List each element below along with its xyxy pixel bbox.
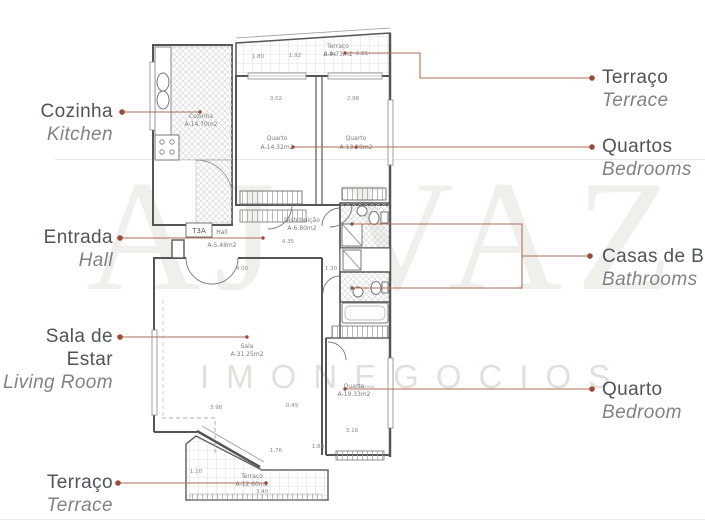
label-cozinha-en: Kitchen bbox=[0, 123, 113, 146]
svg-text:1.30: 1.30 bbox=[325, 266, 338, 272]
label-terraco-tr: Terraço Terrace bbox=[602, 66, 669, 112]
label-entrada-en: Hall bbox=[0, 249, 113, 272]
kitchen-fixtures bbox=[150, 47, 232, 223]
svg-text:A-14.70m2: A-14.70m2 bbox=[185, 121, 218, 128]
svg-text:1.10: 1.10 bbox=[190, 469, 203, 475]
utility-box bbox=[172, 240, 184, 258]
kitchen-stove bbox=[155, 135, 179, 160]
bedroom3-bottom-window bbox=[336, 451, 384, 460]
svg-text:A-6.80m2: A-6.80m2 bbox=[287, 225, 316, 232]
label-sala-pt: Sala de Estar bbox=[0, 325, 113, 371]
svg-text:3.40: 3.40 bbox=[256, 489, 269, 495]
svg-text:A-14.32m2: A-14.32m2 bbox=[261, 144, 294, 151]
bedroom-divider-wall bbox=[316, 76, 322, 205]
kitchen-window bbox=[150, 62, 155, 130]
label-quarto-br-pt: Quarto bbox=[602, 378, 682, 401]
room-label-terraco-top: Terraço bbox=[326, 43, 349, 50]
svg-text:1.80: 1.80 bbox=[312, 444, 325, 450]
svg-text:A-12.60m2: A-12.60m2 bbox=[236, 481, 269, 488]
room-label-terraco-bottom: Terraço bbox=[240, 473, 263, 480]
label-quartos-en: Bedrooms bbox=[602, 158, 692, 181]
room-label-hall: Hall bbox=[216, 229, 228, 236]
svg-text:1.80: 1.80 bbox=[252, 54, 265, 60]
svg-text:4.35: 4.35 bbox=[282, 239, 295, 245]
room-label-quarto2: Quarto bbox=[346, 135, 367, 142]
label-sala: Sala de Estar Living Room bbox=[0, 325, 113, 394]
label-terraco-tr-en: Terrace bbox=[602, 89, 669, 112]
bedrooms-walls bbox=[236, 76, 390, 205]
bedroom3-wardrobe bbox=[332, 326, 388, 338]
svg-text:3.98: 3.98 bbox=[210, 405, 223, 411]
label-banhos: Casas de Banho Bathrooms bbox=[602, 245, 705, 291]
bedroom1-wardrobe bbox=[240, 191, 302, 204]
room-label-sala: Sala bbox=[241, 343, 254, 350]
svg-text:A-31.25m2: A-31.25m2 bbox=[231, 351, 264, 358]
bedroom3-door-arc bbox=[328, 342, 346, 360]
label-cozinha: Cozinha Kitchen bbox=[0, 100, 113, 146]
label-entrada-pt: Entrada bbox=[0, 226, 113, 249]
floorplan-page: { "watermark": { "brand": "AJ VAZ", "sub… bbox=[0, 0, 705, 528]
svg-text:1.92: 1.92 bbox=[289, 53, 301, 59]
label-quartos: Quartos Bedrooms bbox=[602, 135, 692, 181]
living-window bbox=[152, 330, 157, 415]
unit-tag: T3A bbox=[191, 227, 206, 235]
svg-text:1.76: 1.76 bbox=[270, 448, 283, 454]
svg-text:2.44: 2.44 bbox=[324, 52, 337, 58]
bedroom2-side-window bbox=[388, 100, 393, 165]
label-banhos-pt: Casas de Banho bbox=[602, 245, 705, 268]
bedroom2-wardrobe bbox=[342, 188, 386, 200]
label-terraco-bl-pt: Terraço bbox=[0, 471, 113, 494]
svg-text:A-5.48m2: A-5.48m2 bbox=[207, 242, 236, 249]
label-sala-en: Living Room bbox=[0, 371, 113, 394]
svg-text:2.98: 2.98 bbox=[347, 96, 360, 102]
svg-text:1.21: 1.21 bbox=[356, 51, 368, 57]
label-quarto-br: Quarto Bedroom bbox=[602, 378, 682, 424]
bedroom3-side-window bbox=[388, 358, 393, 428]
label-terraco-bl: Terraço Terrace bbox=[0, 471, 113, 517]
label-quartos-pt: Quartos bbox=[602, 135, 692, 158]
label-entrada: Entrada Hall bbox=[0, 226, 113, 272]
svg-text:3.16: 3.16 bbox=[346, 428, 359, 434]
room-label-cozinha: Cozinha bbox=[189, 113, 213, 120]
label-cozinha-pt: Cozinha bbox=[0, 100, 113, 123]
bathroom1-toilet bbox=[369, 212, 379, 225]
bathroom-fixtures bbox=[340, 203, 390, 323]
svg-text:A-19.33m2: A-19.33m2 bbox=[338, 391, 371, 398]
label-terraco-tr-pt: Terraço bbox=[602, 66, 669, 89]
room-label-quarto1: Quarto bbox=[267, 135, 288, 142]
label-terraco-bl-en: Terrace bbox=[0, 494, 113, 517]
bathroom2-door-arc bbox=[323, 276, 340, 293]
bathroom1-door-arc bbox=[322, 208, 340, 226]
bathroom1-sink bbox=[357, 206, 367, 216]
kitchen-sink bbox=[157, 73, 169, 91]
entry-door-arc bbox=[186, 258, 212, 284]
svg-text:0.49: 0.49 bbox=[286, 403, 299, 409]
label-banhos-en: Bathrooms bbox=[602, 268, 705, 291]
room-label-distribuicao: Distribuição bbox=[284, 217, 320, 224]
svg-text:4.00: 4.00 bbox=[236, 266, 249, 272]
label-quarto-br-en: Bedroom bbox=[602, 401, 682, 424]
svg-text:3.02: 3.02 bbox=[270, 96, 282, 102]
